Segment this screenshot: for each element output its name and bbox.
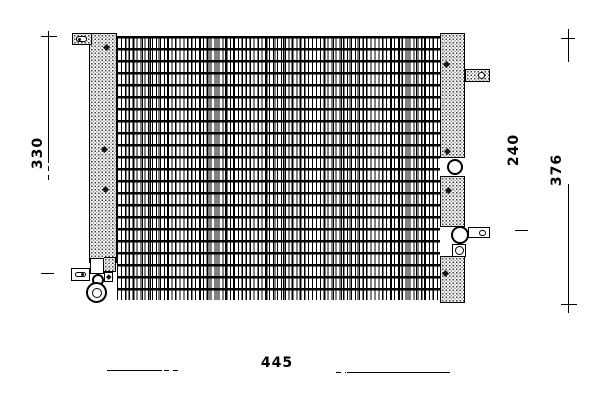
fitting-bracket <box>468 227 490 238</box>
left-bottom-mounting-bracket <box>71 268 90 281</box>
dim-376-bottom-tick <box>561 304 577 305</box>
outlet-side-clip <box>104 272 113 282</box>
dim-445-left-line <box>107 370 162 371</box>
dim-330-line-dashes <box>48 166 49 182</box>
dim-445-right-line <box>347 372 450 373</box>
left-top-mounting-bracket <box>72 33 92 45</box>
dim-330-extension-line <box>48 31 49 163</box>
slot-pin <box>81 273 84 276</box>
dim-330-bottom-tick <box>41 273 54 274</box>
dim-376-top-line <box>568 29 569 62</box>
right-mounting-bracket <box>465 69 490 82</box>
dim-376-top-tick <box>561 38 575 39</box>
right-tank-lower <box>440 256 465 303</box>
right-tank-middle <box>440 176 465 227</box>
dim-240-bottom-tick <box>515 230 528 231</box>
dim-445-left-dashes <box>164 370 178 371</box>
dim-376-label: 376 <box>549 148 565 192</box>
dim-445-right-dashes <box>336 372 346 373</box>
outlet-pipe-connection <box>86 282 107 303</box>
fitting-bracket-hole <box>479 230 486 237</box>
bracket-slot-hole <box>75 272 86 278</box>
core-fin-pack <box>117 36 440 300</box>
bracket-bolt-hole <box>478 72 485 79</box>
dim-376-line <box>568 184 569 313</box>
dim-240-label: 240 <box>506 128 522 172</box>
tank-foot-extension <box>104 257 116 272</box>
slot-pin <box>78 38 81 41</box>
right-tank-joint-ring <box>447 159 463 175</box>
outlet-fitting-block <box>90 258 104 274</box>
inlet-pipe-connection <box>451 226 469 244</box>
dim-330-label: 330 <box>30 131 46 175</box>
right-tank-upper <box>440 33 465 158</box>
fitting-small-port <box>455 246 464 255</box>
clip-bolt-mark <box>106 274 111 279</box>
fitting-base-plate <box>452 244 466 257</box>
outlet-pipe-bore <box>92 288 102 298</box>
bracket-slot-hole <box>76 36 87 42</box>
condenser-technical-drawing: 330 240 376 445 <box>0 0 600 400</box>
dim-445-label: 445 <box>255 355 299 371</box>
dim-330-top-tick <box>41 36 57 37</box>
